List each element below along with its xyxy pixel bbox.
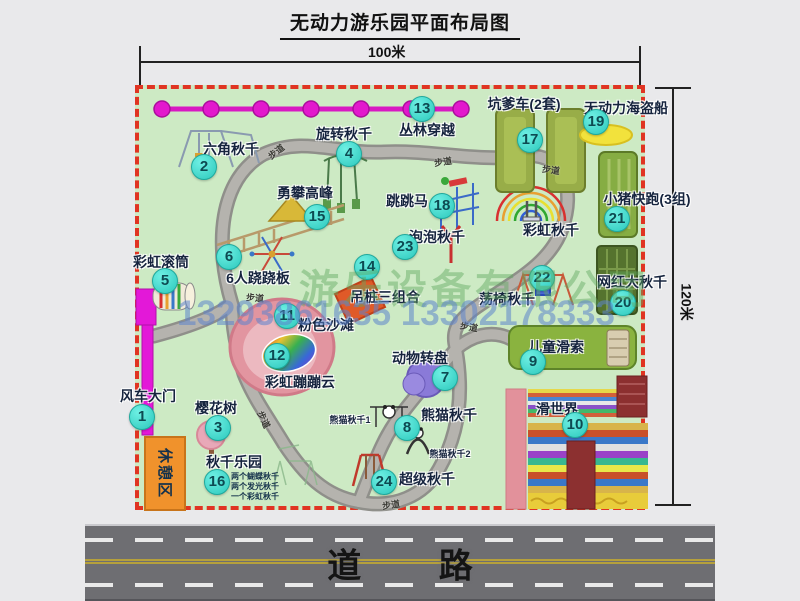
attraction-badge: 21 [604, 206, 630, 232]
footpath-label: 步道 [381, 497, 401, 512]
road-label: 道 路 [327, 538, 506, 587]
dimension-tick-top-right [639, 46, 641, 90]
page-title: 无动力游乐园平面布局图 [280, 8, 520, 40]
rest-area-label: 休憩区 [155, 448, 176, 499]
panda-swing-2-label: 熊猫秋千2 [429, 447, 470, 460]
swing-park-note: 一个彩虹秋千 [231, 492, 279, 502]
footpath-label: 步道 [433, 154, 453, 169]
attraction-badge: 8 [394, 415, 420, 441]
swing-park-note: 两个蝴蝶秋千 [231, 472, 279, 482]
slide-world-shape [506, 376, 648, 509]
attraction-badge: 5 [152, 268, 178, 294]
attraction-badge: 7 [432, 365, 458, 391]
road: 道 路 [85, 524, 715, 601]
swing-park-notes: 两个蝴蝶秋千 两个发光秋千 一个彩虹秋千 [231, 472, 279, 502]
attraction-label-pink-beach: 粉色沙滩 [298, 315, 354, 335]
attraction-badge: 3 [205, 415, 231, 441]
attraction-badge: 4 [336, 141, 362, 167]
attraction-badge: 10 [562, 412, 588, 438]
dimension-tick-right-top [655, 87, 691, 89]
footpath-label: 步道 [245, 290, 264, 305]
attraction-badge: 23 [392, 234, 418, 260]
rest-area: 休憩区 [144, 436, 186, 511]
swing-park-note: 两个发光秋千 [231, 482, 279, 492]
attraction-badge: 2 [191, 154, 217, 180]
dimension-height-label: 120米 [677, 283, 697, 320]
attraction-badge: 18 [429, 193, 455, 219]
panda-swing-1-label: 熊猫秋千1 [329, 413, 370, 426]
attraction-label-panda-swing: 熊猫秋千 [421, 405, 477, 425]
attraction-badge: 22 [529, 265, 555, 291]
attraction-badge: 24 [371, 469, 397, 495]
attraction-label-super-swing: 超级秋千 [399, 469, 455, 489]
park-map: 游乐设备有限公司 13293861635 13302178333 风车大门 六角… [135, 85, 645, 510]
attraction-badge: 1 [129, 404, 155, 430]
dimension-tick-top-left [139, 46, 141, 90]
attraction-label-windmill-gate: 风车大门 [120, 386, 176, 406]
attraction-badge: 16 [204, 469, 230, 495]
attraction-badge: 19 [583, 109, 609, 135]
footpath-label: 步道 [541, 162, 561, 177]
attraction-badge: 17 [517, 127, 543, 153]
rainbow-swing-label: 彩虹秋千 [523, 220, 579, 240]
attraction-label-jumping-horse: 跳跳马 [386, 191, 428, 211]
dimension-width-label: 100米 [368, 42, 405, 62]
dimension-line-right [672, 88, 674, 506]
attraction-label-rainbow-cloud: 彩虹蹦蹦云 [265, 372, 335, 392]
attraction-label-kengdie-car: 坑爹车(2套) [487, 94, 560, 114]
attraction-badge: 13 [409, 96, 435, 122]
attraction-label-jungle-crossing: 丛林穿越 [399, 120, 455, 140]
attraction-badge: 9 [520, 349, 546, 375]
attraction-label-big-swing: 网红大秋千 [597, 272, 667, 292]
attraction-badge: 20 [610, 290, 636, 316]
attraction-label-rocking-chair-swing: 荡椅秋千 [479, 289, 535, 309]
attraction-badge: 6 [216, 244, 242, 270]
attraction-badge: 15 [304, 204, 330, 230]
attraction-badge: 11 [274, 303, 300, 329]
attraction-badge: 12 [264, 343, 290, 369]
attraction-label-seesaw: 6人跷跷板 [226, 268, 290, 288]
attraction-label-climbing-peak: 勇攀高峰 [277, 183, 333, 203]
dimension-tick-right-bottom [655, 504, 691, 506]
attraction-badge: 14 [354, 254, 380, 280]
attraction-label-hanging-post-combo: 吊桩三组合 [350, 287, 420, 307]
